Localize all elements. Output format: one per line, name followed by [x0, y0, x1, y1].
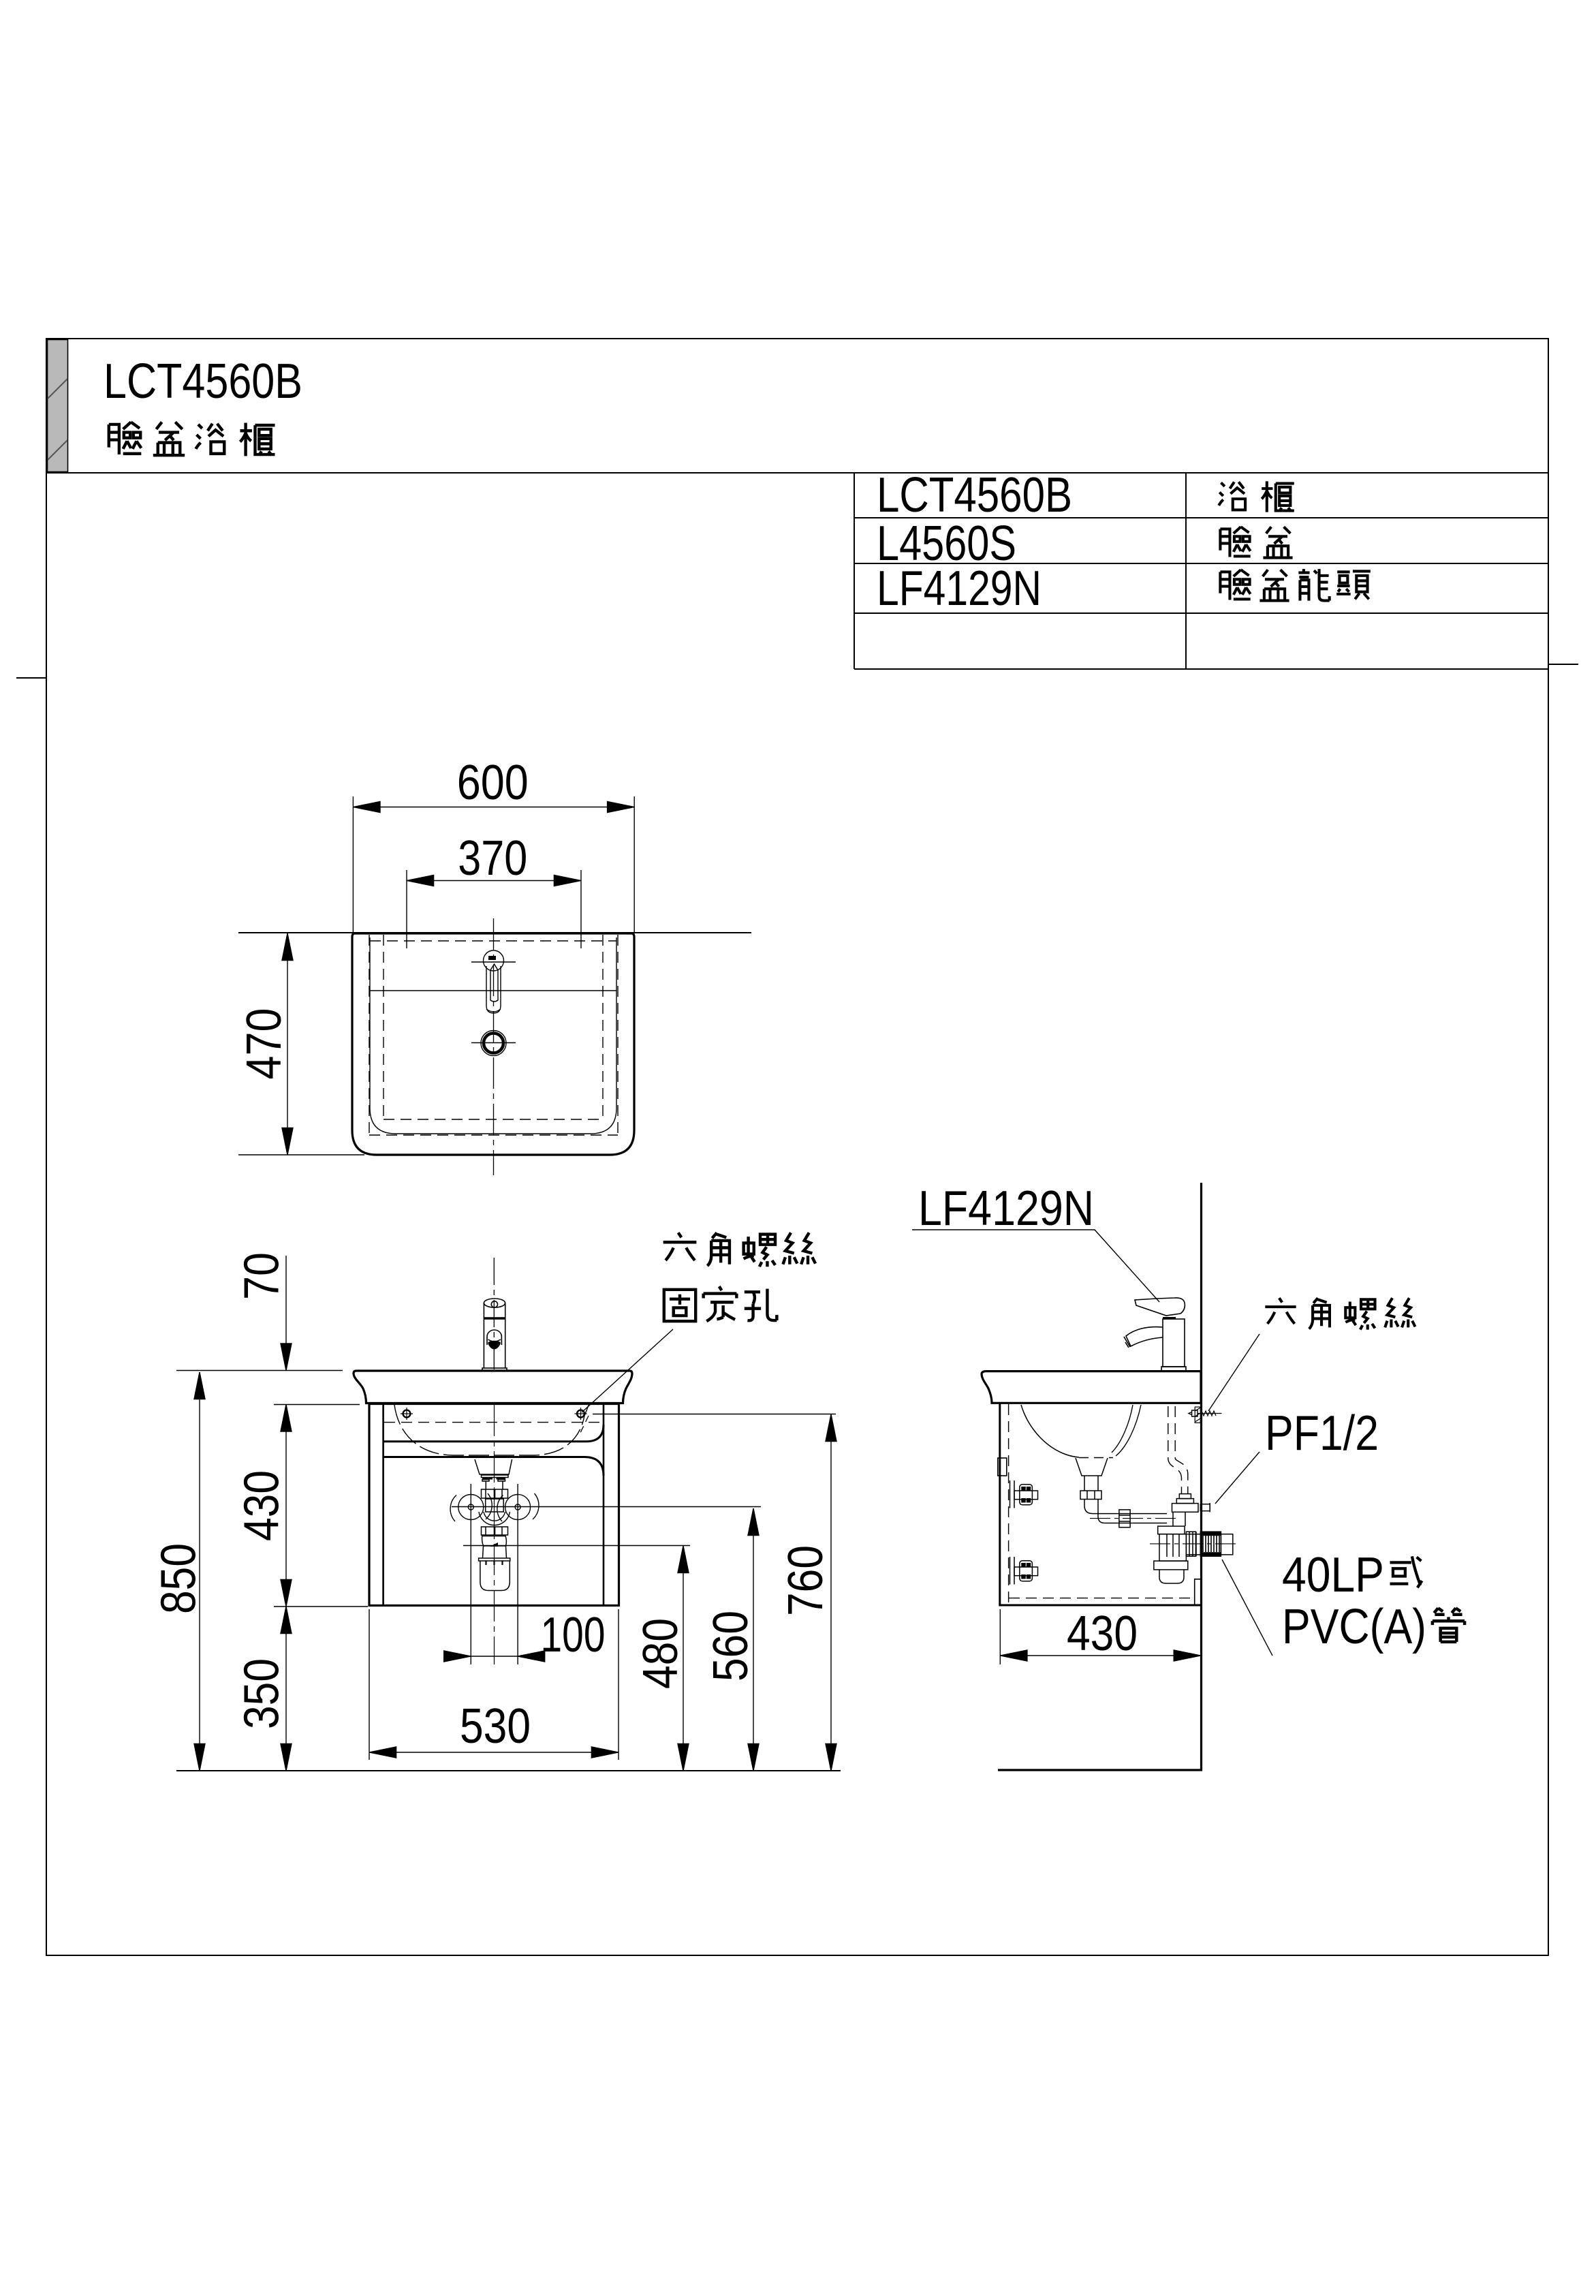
svg-text:70: 70	[235, 1252, 290, 1300]
svg-text:480: 480	[633, 1618, 688, 1689]
svg-text:560: 560	[704, 1611, 758, 1681]
svg-text:370: 370	[458, 831, 527, 886]
svg-text:PF1/2: PF1/2	[1265, 1406, 1379, 1461]
svg-text:430: 430	[1067, 1607, 1138, 1661]
svg-text:600: 600	[457, 756, 529, 810]
svg-text:PVC(A): PVC(A)	[1282, 1600, 1426, 1654]
svg-text:LCT4560B: LCT4560B	[877, 468, 1072, 523]
svg-text:LF4129N: LF4129N	[918, 1181, 1094, 1236]
svg-text:760: 760	[779, 1545, 833, 1616]
svg-text:530: 530	[460, 1699, 531, 1754]
svg-text:40LP: 40LP	[1282, 1548, 1384, 1602]
svg-text:LF4129N: LF4129N	[877, 561, 1042, 616]
svg-text:470: 470	[237, 1008, 292, 1080]
svg-text:100: 100	[541, 1608, 606, 1662]
svg-text:350: 350	[235, 1658, 290, 1729]
svg-text:430: 430	[235, 1470, 290, 1541]
svg-text:850: 850	[152, 1543, 206, 1614]
svg-text:LCT4560B: LCT4560B	[104, 354, 302, 409]
